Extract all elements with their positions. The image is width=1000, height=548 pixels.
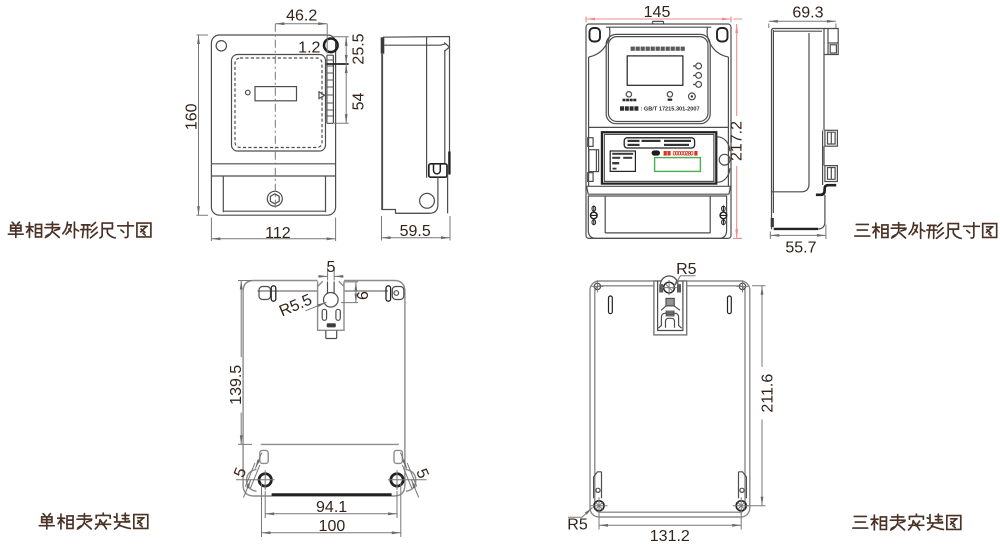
svg-text:145: 145 xyxy=(644,4,671,21)
svg-text:112: 112 xyxy=(265,225,291,242)
svg-text:6: 6 xyxy=(355,291,372,300)
svg-text:139.5: 139.5 xyxy=(228,365,245,405)
svg-text:5: 5 xyxy=(327,259,336,276)
svg-text:69.3: 69.3 xyxy=(792,5,823,22)
svg-text:211.6: 211.6 xyxy=(760,374,777,413)
svg-text:25.5: 25.5 xyxy=(350,33,367,64)
svg-text:: GB/T 17215.301-2007: : GB/T 17215.301-2007 xyxy=(641,107,700,113)
svg-text:160: 160 xyxy=(183,103,200,130)
svg-text:100: 100 xyxy=(319,518,346,535)
svg-text:59.5: 59.5 xyxy=(400,223,431,240)
svg-text:54: 54 xyxy=(350,93,367,111)
svg-text:5: 5 xyxy=(231,465,250,480)
svg-text:R5: R5 xyxy=(567,517,588,534)
svg-text:217.2: 217.2 xyxy=(728,121,745,161)
svg-text:5: 5 xyxy=(412,466,431,481)
svg-text:94.1: 94.1 xyxy=(316,499,347,516)
svg-text:R5.5: R5.5 xyxy=(277,291,315,320)
svg-text:1.2: 1.2 xyxy=(298,39,320,56)
svg-text:46.2: 46.2 xyxy=(286,7,317,24)
svg-text:00000280: 00000280 xyxy=(673,150,695,157)
svg-text:131.2: 131.2 xyxy=(650,528,690,545)
svg-text:55.7: 55.7 xyxy=(785,239,816,256)
